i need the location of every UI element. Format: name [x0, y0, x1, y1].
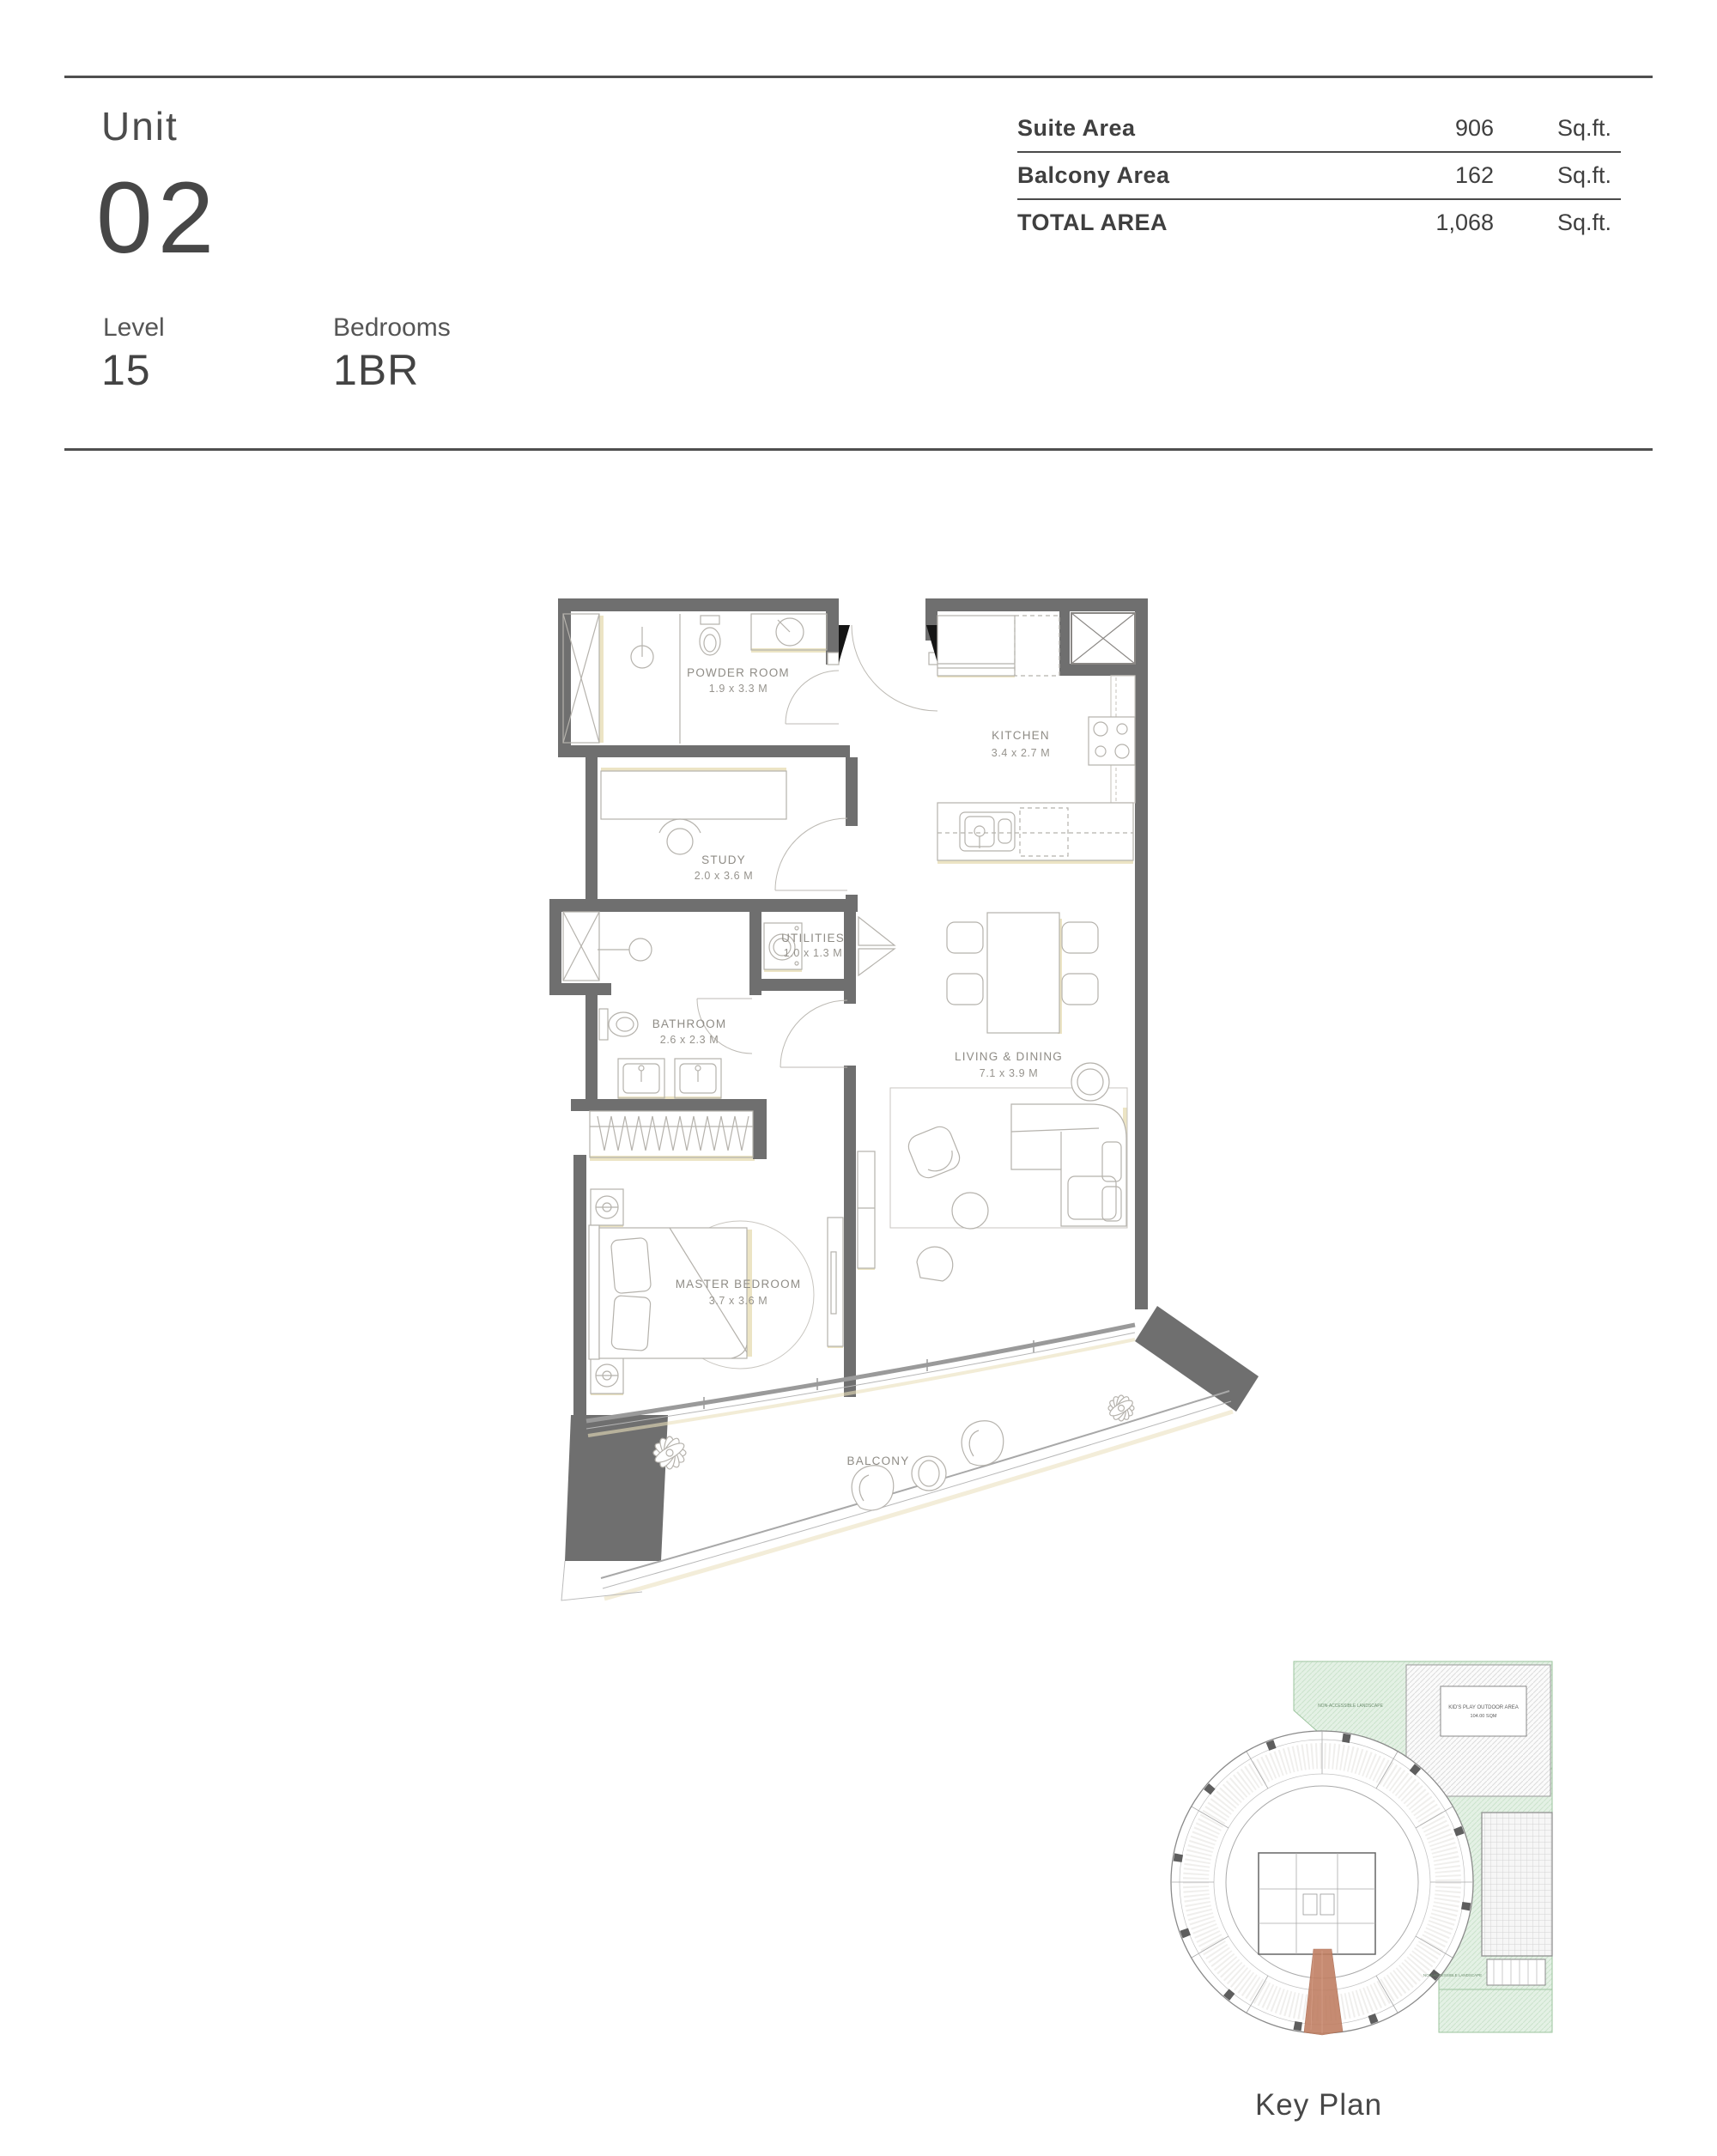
pillow-1 — [610, 1237, 651, 1293]
balcony-table — [912, 1456, 946, 1491]
entry-door-leaf — [839, 625, 850, 663]
unit-label: Unit — [101, 103, 179, 149]
utilities-bifold-door — [858, 917, 895, 945]
kids-play-label: KID'S PLAY OUTDOOR AREA — [1448, 1705, 1519, 1710]
study-desk — [601, 771, 786, 819]
tv-unit — [828, 1218, 843, 1346]
sofa — [1011, 1104, 1126, 1226]
area-row-suite: Suite Area 906 Sq.ft. — [1017, 106, 1621, 153]
svg-text:1.0 x 1.3 M: 1.0 x 1.3 M — [784, 947, 842, 959]
bedrooms-value: 1BR — [333, 345, 419, 395]
svg-text:1.9 x 3.3 M: 1.9 x 3.3 M — [709, 683, 767, 695]
keyplan-caption: Key Plan — [1142, 2088, 1496, 2123]
total-area-label: TOTAL AREA — [1017, 210, 1365, 236]
suite-area-value: 906 — [1365, 115, 1494, 142]
label-utilities: UTILITIES — [781, 932, 845, 944]
area-row-total: TOTAL AREA 1,068 Sq.ft. — [1017, 200, 1621, 246]
svg-text:NON-ACCESSIBLE LANDSCAPE: NON-ACCESSIBLE LANDSCAPE — [1318, 1704, 1384, 1709]
total-area-value: 1,068 — [1365, 210, 1494, 236]
dining-table — [987, 913, 1059, 1033]
label-master-bedroom: MASTER BEDROOM — [676, 1278, 802, 1291]
level-value: 15 — [101, 345, 151, 395]
bed-headboard — [589, 1225, 599, 1359]
plant-icon — [1107, 1394, 1134, 1421]
unit-number: 02 — [96, 160, 219, 276]
living-dining-furniture — [890, 913, 1127, 1281]
label-living-dining: LIVING & DINING — [955, 1050, 1063, 1063]
svg-text:2.0 x 3.6 M: 2.0 x 3.6 M — [695, 870, 753, 882]
dining-chair — [947, 922, 983, 953]
small-chair — [917, 1247, 953, 1281]
armchair — [905, 1123, 963, 1181]
lift-machine-room — [1482, 1813, 1552, 1956]
suite-area-label: Suite Area — [1017, 115, 1365, 142]
top-rule — [64, 76, 1653, 78]
bedrooms-label: Bedrooms — [333, 313, 451, 343]
study-furniture — [601, 771, 786, 854]
hangers-icon — [598, 1116, 749, 1151]
label-powder-room: POWDER ROOM — [687, 666, 790, 679]
svg-text:NON-ACCESSIBLE LANDSCAPE: NON-ACCESSIBLE LANDSCAPE — [1423, 1973, 1482, 1977]
balcony-area-label: Balcony Area — [1017, 162, 1365, 189]
kitchen-island — [937, 803, 1133, 860]
level-label: Level — [103, 313, 165, 343]
balcony-area-unit: Sq.ft. — [1494, 162, 1621, 189]
powder-wc-icon — [701, 616, 719, 624]
total-area-unit: Sq.ft. — [1494, 210, 1621, 236]
area-row-balcony: Balcony Area 162 Sq.ft. — [1017, 153, 1621, 200]
suite-area-unit: Sq.ft. — [1494, 115, 1621, 142]
core — [1259, 1853, 1375, 1954]
svg-text:2.6 x 2.3 M: 2.6 x 2.3 M — [660, 1034, 719, 1046]
fridge-icon — [937, 616, 1015, 676]
label-kitchen: KITCHEN — [992, 729, 1050, 742]
stair-icon — [1487, 1959, 1545, 1985]
balcony-chair-1 — [852, 1466, 894, 1510]
pillow-2 — [611, 1296, 651, 1351]
area-table: Suite Area 906 Sq.ft. Balcony Area 162 S… — [1017, 106, 1621, 246]
bedroom-furniture — [589, 1151, 875, 1394]
balcony-chair-2 — [962, 1421, 1004, 1466]
bath-basin-icon — [629, 938, 652, 961]
key-plan: KID'S PLAY OUTDOOR AREA 104.00 SQM NON-A… — [1142, 1631, 1623, 2099]
header-bottom-rule — [64, 448, 1653, 451]
svg-text:7.1 x 3.9 M: 7.1 x 3.9 M — [980, 1067, 1038, 1079]
bath-wc-icon — [599, 1009, 608, 1040]
hall-console — [858, 1151, 875, 1268]
floor-plan: POWDER ROOM 1.9 x 3.3 M STUDY 2.0 x 3.6 … — [541, 575, 1262, 1606]
brochure-page: Unit 02 Suite Area 906 Sq.ft. Balcony Ar… — [0, 0, 1717, 2156]
label-study: STUDY — [701, 853, 746, 866]
pouf — [952, 1193, 988, 1229]
label-bathroom: BATHROOM — [652, 1017, 727, 1030]
svg-text:3.4 x 2.7 M: 3.4 x 2.7 M — [992, 747, 1050, 759]
balcony-area-value: 162 — [1365, 162, 1494, 189]
powder-vanity — [751, 614, 827, 650]
utilities-fixtures — [764, 923, 802, 969]
label-balcony: BALCONY — [847, 1455, 910, 1467]
walls — [549, 598, 1259, 1561]
closet-hall — [563, 912, 599, 981]
svg-text:104.00 SQM: 104.00 SQM — [1471, 1714, 1497, 1719]
svg-text:3.7 x 3.6 M: 3.7 x 3.6 M — [709, 1295, 767, 1307]
shaft-icon — [1071, 613, 1135, 664]
wardrobe — [590, 1111, 753, 1157]
